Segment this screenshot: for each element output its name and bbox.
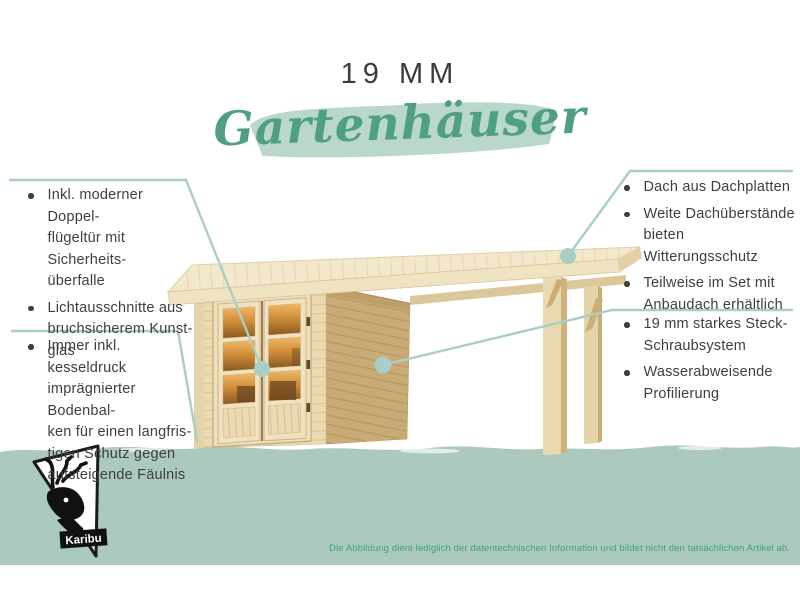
bullet-dot — [624, 281, 630, 287]
bullet-dot — [624, 370, 630, 376]
callout-line-text: Lichtausschnitte aus — [48, 298, 193, 320]
callout-line-text: ken für einen langfris- — [48, 422, 203, 444]
list-item: Teilweise im Set mit Anbaudach erhältlic… — [622, 273, 798, 316]
callout-line-text: Profilierung — [644, 384, 773, 406]
canopy-post-front-side — [561, 277, 567, 454]
logo-label: Karibu — [65, 533, 102, 548]
callout-dot-wall — [375, 357, 392, 374]
callout-line-text: Dach aus Dachplatten — [644, 177, 791, 199]
callout-left-bottom: Immer inkl. kesseldruck imprägnierter Bo… — [26, 336, 202, 492]
list-item: Dach aus Dachplatten — [622, 177, 798, 199]
callout-line-text: aufsteigende Fäulnis — [48, 465, 203, 487]
bullet-dot — [28, 344, 34, 350]
disclaimer-text: Die Abbildung dient lediglich der datent… — [270, 543, 790, 554]
list-item: Wasserabweisende Profilierung — [622, 362, 798, 405]
side-wall — [326, 286, 410, 444]
bullet-dot — [624, 185, 630, 191]
callout-line-text: imprägnierter Bodenbal- — [48, 379, 203, 422]
bullet-dot — [28, 193, 34, 199]
callout-dot-roof — [560, 248, 576, 264]
list-item: Inkl. moderner Doppel- flügeltür mit Sic… — [26, 185, 194, 293]
callout-line-text: Anbaudach erhältlich — [644, 295, 783, 317]
callout-line-text: Weite Dachüberstände — [644, 204, 799, 226]
callout-line-text: Inkl. moderner Doppel- — [48, 185, 195, 228]
list-item: Weite Dachüberstände bieten Witterungssc… — [622, 204, 798, 269]
canopy — [410, 275, 626, 455]
callout-line-text: tigen Schutz gegen — [48, 444, 203, 466]
garden-house-illustration — [168, 247, 642, 455]
callout-line-text: überfalle — [48, 271, 195, 293]
callout-right-top: Dach aus Dachplatten Weite Dachüberständ… — [622, 177, 798, 321]
callout-line-text: Wasserabweisende — [644, 362, 773, 384]
callout-line-text: Schraubsystem — [644, 336, 788, 358]
callout-dot-door — [254, 361, 270, 377]
callout-right-bottom: 19 mm starkes Steck- Schraubsystem Wasse… — [622, 314, 798, 410]
infographic-page: Karibu 19 MM Gartenhäuser Inkl. moderner… — [0, 0, 800, 600]
bullet-dot — [28, 306, 34, 312]
callout-line-text: Immer inkl. kesseldruck — [48, 336, 203, 379]
callout-line-text: flügeltür mit Sicherheits- — [48, 228, 195, 271]
door-panel-right — [269, 404, 301, 435]
callout-line-text: bieten Witterungsschutz — [644, 225, 799, 268]
list-item: 19 mm starkes Steck- Schraubsystem — [622, 314, 798, 357]
bullet-dot — [624, 322, 630, 328]
callout-line-text: Teilweise im Set mit — [644, 273, 783, 295]
list-item: Immer inkl. kesseldruck imprägnierter Bo… — [26, 336, 202, 487]
callout-line-text: 19 mm starkes Steck- — [644, 314, 788, 336]
door-panel-left — [223, 407, 255, 438]
bullet-dot — [624, 212, 630, 218]
